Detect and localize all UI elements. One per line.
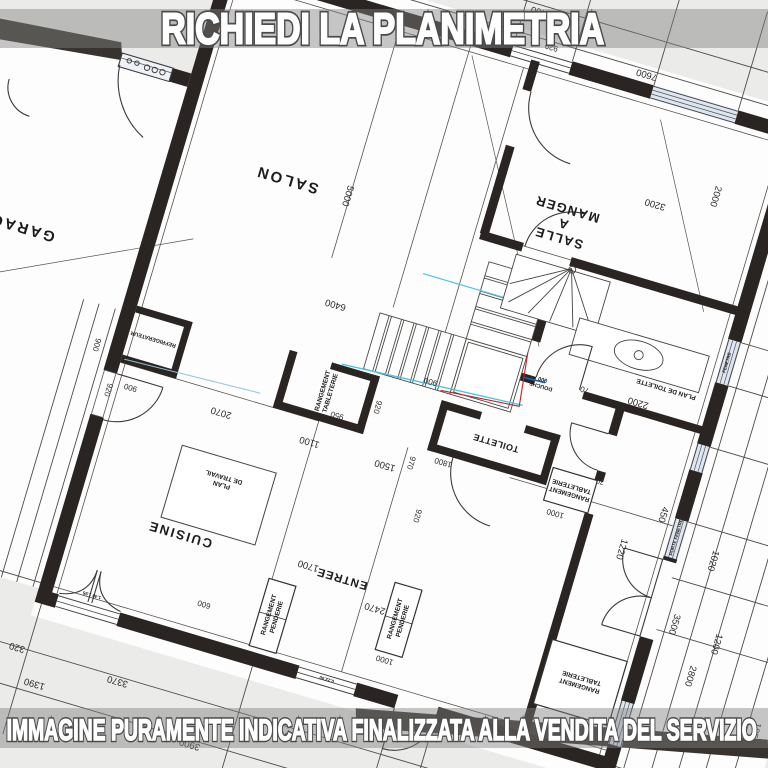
- svg-text:RICHIEDI LA PLANIMETRIA: RICHIEDI LA PLANIMETRIA: [161, 4, 604, 53]
- svg-text:IMMAGINE PURAMENTE INDICATIVA: IMMAGINE PURAMENTE INDICATIVA FINALIZZAT…: [7, 714, 757, 747]
